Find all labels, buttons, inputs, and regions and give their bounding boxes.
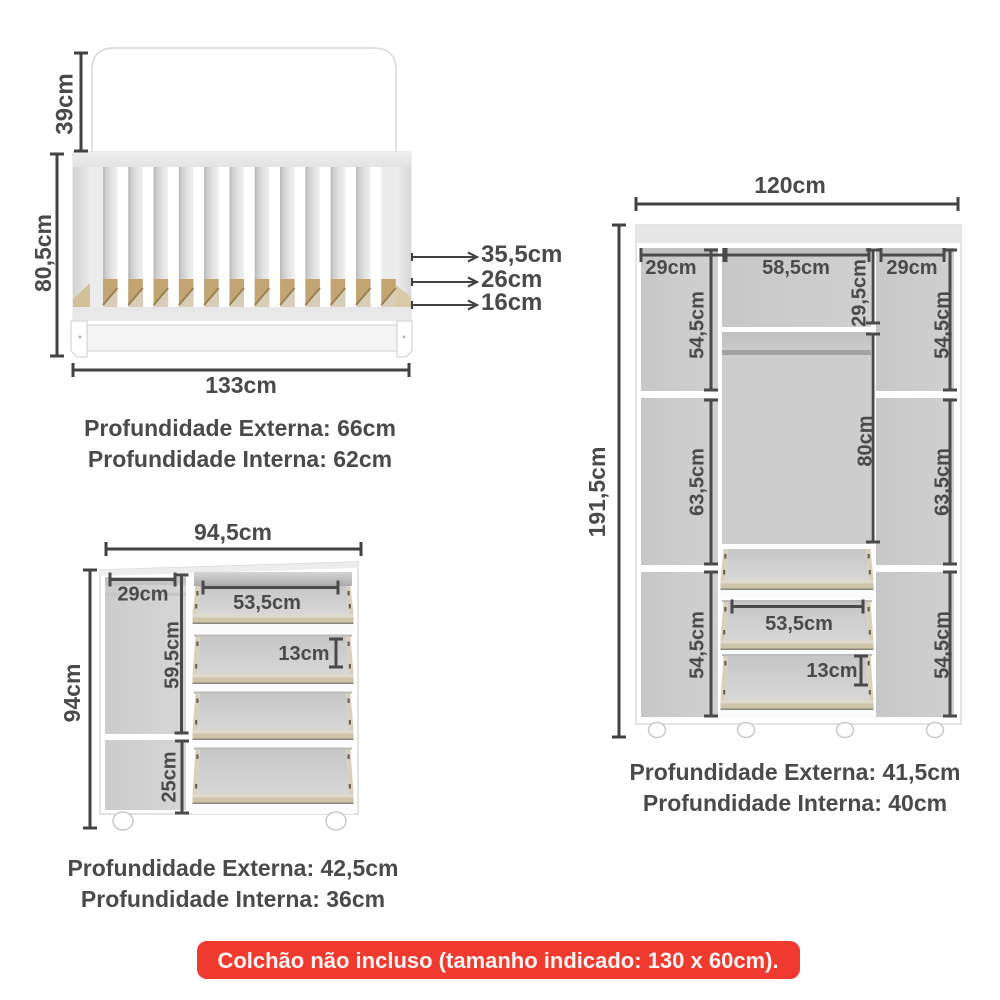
svg-text:53,5cm: 53,5cm [765,613,833,635]
svg-text:54,5cm: 54,5cm [931,291,953,359]
svg-text:94cm: 94cm [59,664,85,723]
svg-text:80,5cm: 80,5cm [30,214,56,292]
svg-text:54,5cm: 54,5cm [686,291,708,359]
svg-text:120cm: 120cm [754,172,826,198]
svg-text:Profundidade Externa: 41,5cm: Profundidade Externa: 41,5cm [629,759,960,785]
svg-text:191,5cm: 191,5cm [584,447,610,538]
svg-text:63,5cm: 63,5cm [686,448,708,516]
svg-text:25cm: 25cm [158,751,180,802]
svg-text:133cm: 133cm [205,372,277,398]
svg-text:59,5cm: 59,5cm [161,621,183,689]
svg-text:Profundidade Interna: 36cm: Profundidade Interna: 36cm [81,886,385,912]
svg-text:Profundidade Externa: 42,5cm: Profundidade Externa: 42,5cm [67,855,398,881]
svg-text:16cm: 16cm [481,289,542,316]
svg-text:Profundidade Interna: 40cm: Profundidade Interna: 40cm [643,790,947,816]
svg-text:94,5cm: 94,5cm [194,519,272,545]
svg-text:54,5cm: 54,5cm [686,611,708,679]
svg-text:Profundidade Externa: 66cm: Profundidade Externa: 66cm [84,415,396,441]
svg-text:13cm: 13cm [278,643,329,665]
svg-text:58,5cm: 58,5cm [762,257,830,279]
svg-text:63,5cm: 63,5cm [931,448,953,516]
svg-text:54,5cm: 54,5cm [931,611,953,679]
svg-text:35,5cm: 35,5cm [481,241,562,268]
svg-text:29cm: 29cm [117,584,168,606]
svg-text:13cm: 13cm [806,660,857,682]
svg-text:Colchão não incluso (tamanho i: Colchão não incluso (tamanho indicado: 1… [217,948,778,973]
svg-text:29cm: 29cm [886,257,937,279]
svg-text:29,5cm: 29,5cm [848,259,870,327]
svg-text:29cm: 29cm [645,257,696,279]
svg-text:Profundidade Interna: 62cm: Profundidade Interna: 62cm [88,446,392,472]
svg-text:80cm: 80cm [854,415,876,466]
svg-text:39cm: 39cm [51,73,78,134]
svg-text:53,5cm: 53,5cm [233,592,301,614]
